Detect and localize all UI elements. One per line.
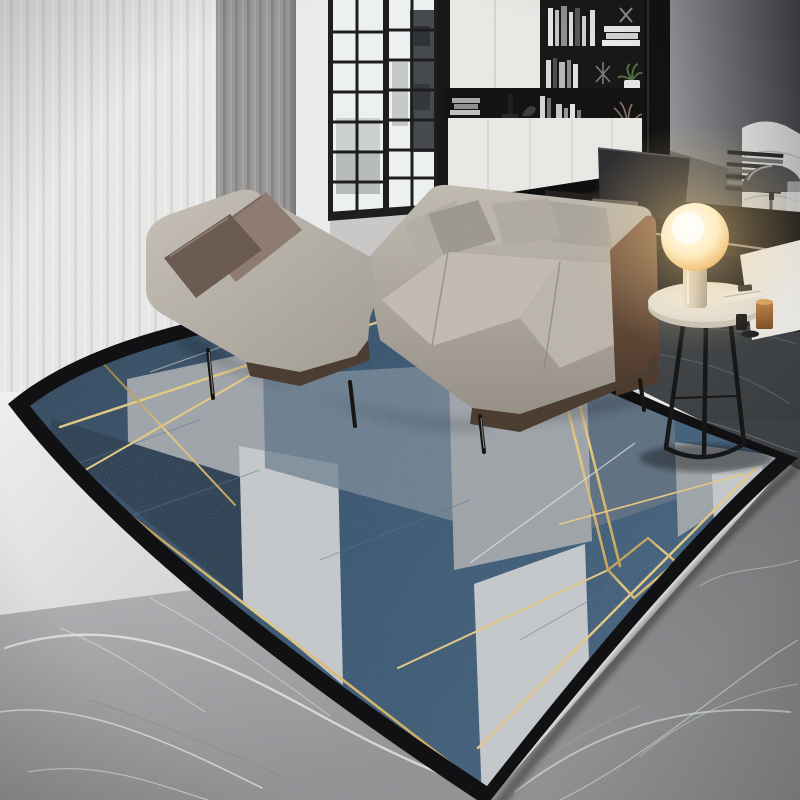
scene-canvas [0, 0, 800, 800]
living-room-photo [0, 0, 800, 800]
vignette [0, 0, 800, 800]
